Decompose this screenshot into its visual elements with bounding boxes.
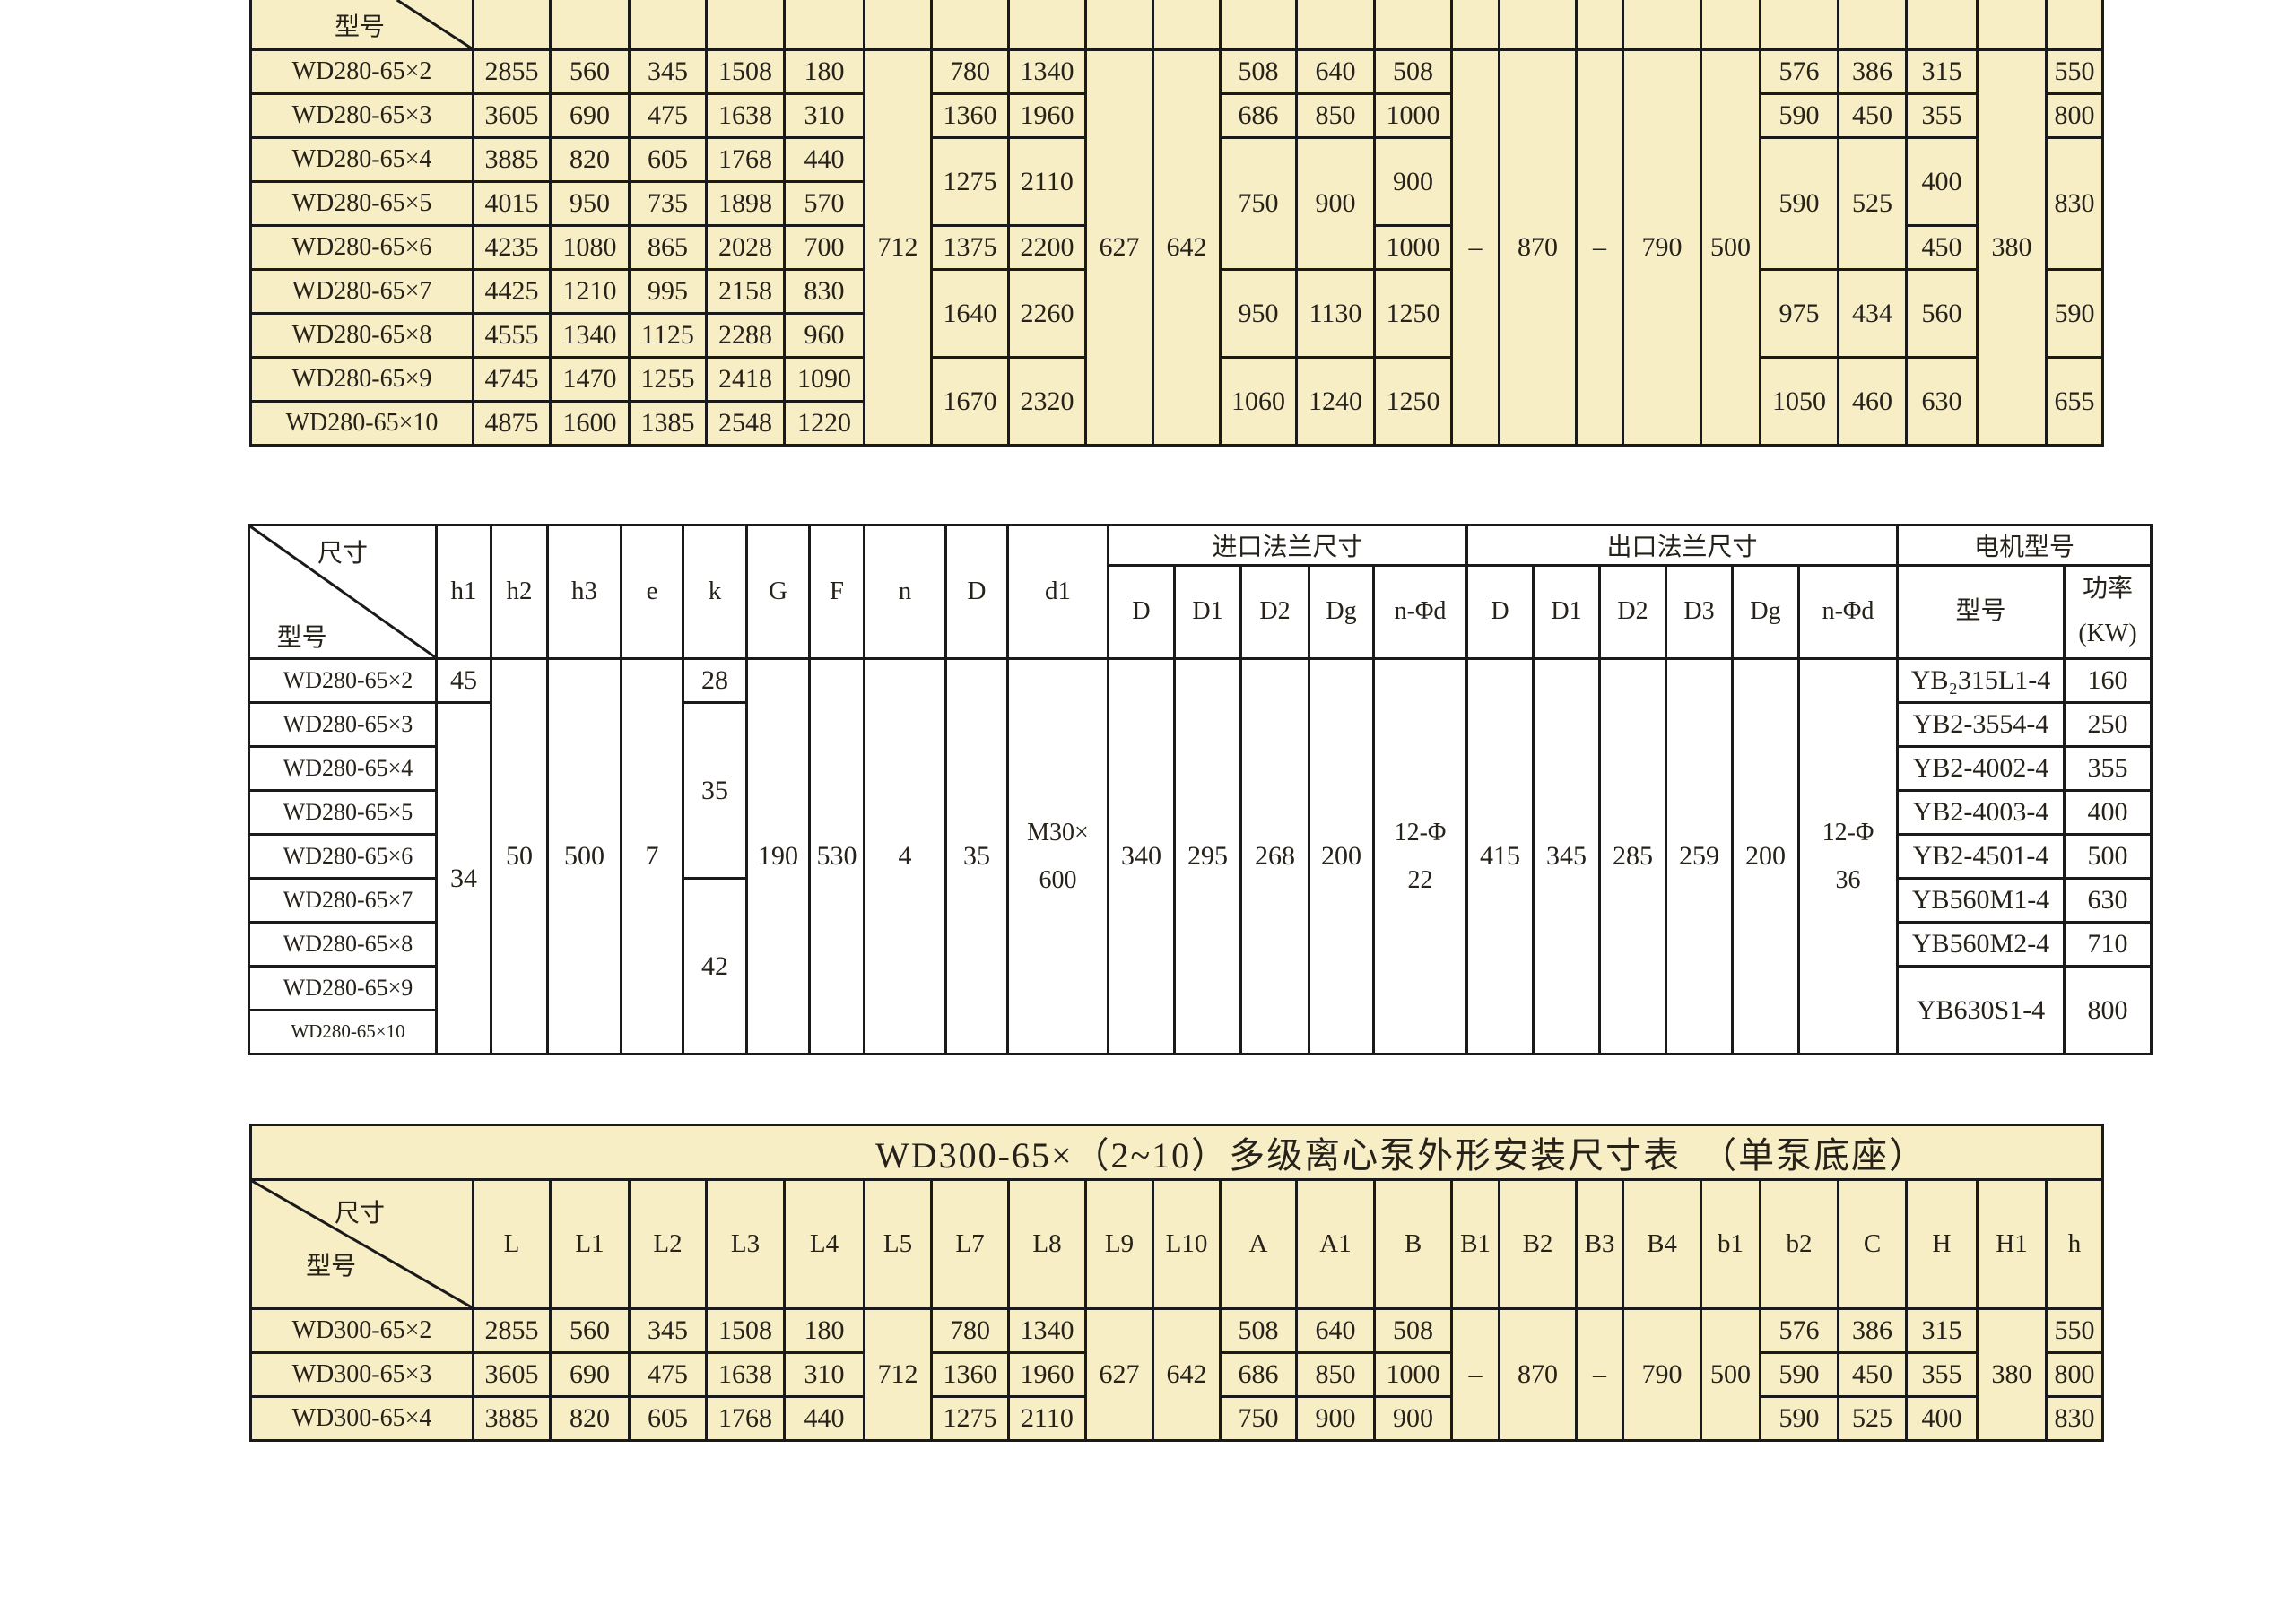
cut-header-cell bbox=[707, 0, 785, 50]
value-cell: 1768 bbox=[707, 138, 785, 182]
value-cell: 1638 bbox=[707, 94, 785, 138]
column-header: D1 bbox=[1175, 566, 1241, 659]
value-cell: – bbox=[1577, 50, 1623, 446]
value-cell: 605 bbox=[630, 1397, 707, 1441]
value-cell: 800 bbox=[2047, 94, 2103, 138]
cut-header-cell bbox=[1086, 0, 1153, 50]
value-cell: 1240 bbox=[1297, 358, 1375, 446]
column-header: L bbox=[474, 1180, 551, 1309]
value-cell: 750 bbox=[1221, 1397, 1297, 1441]
column-header: L3 bbox=[707, 1180, 785, 1309]
cut-header-cell bbox=[1221, 0, 1297, 50]
value-cell: 1508 bbox=[707, 1309, 785, 1353]
value-cell: 975 bbox=[1761, 270, 1839, 358]
value-cell: 1125 bbox=[630, 314, 707, 358]
value-cell: 576 bbox=[1761, 50, 1839, 94]
column-header: n bbox=[865, 525, 946, 659]
value-cell: 950 bbox=[1221, 270, 1297, 358]
value-cell: 1640 bbox=[932, 270, 1009, 358]
value-cell: 355 bbox=[2065, 746, 2152, 790]
column-header: L5 bbox=[865, 1180, 932, 1309]
value-cell: 590 bbox=[1761, 1353, 1839, 1397]
value-cell: 576 bbox=[1761, 1309, 1839, 1353]
value-cell: 508 bbox=[1375, 1309, 1452, 1353]
corner-cell: 尺寸 型号 bbox=[251, 1180, 474, 1309]
table-row: WD280-65×24550500728190530435M30× 600340… bbox=[249, 658, 2152, 702]
column-header: b2 bbox=[1761, 1180, 1839, 1309]
value-cell: 415 bbox=[1467, 658, 1534, 1054]
value-cell: 285 bbox=[1600, 658, 1666, 1054]
value-cell: 525 bbox=[1839, 138, 1907, 270]
value-cell: 12-Φ 22 bbox=[1374, 658, 1467, 1054]
cut-header-cell bbox=[1839, 0, 1907, 50]
value-cell: 800 bbox=[2065, 966, 2152, 1054]
value-cell: 530 bbox=[810, 658, 865, 1054]
value-cell: 712 bbox=[865, 1309, 932, 1441]
value-cell: 4425 bbox=[474, 270, 551, 314]
cut-header-cell bbox=[1297, 0, 1375, 50]
value-cell: 1470 bbox=[551, 358, 630, 402]
model-cell: WD280-65×6 bbox=[251, 226, 474, 270]
value-cell: 1275 bbox=[932, 138, 1009, 226]
column-header: B1 bbox=[1452, 1180, 1500, 1309]
corner-model-label: 型号 bbox=[277, 618, 327, 654]
value-cell: 712 bbox=[865, 50, 932, 446]
value-cell: 550 bbox=[2047, 50, 2103, 94]
value-cell: 780 bbox=[932, 1309, 1009, 1353]
value-cell: 310 bbox=[785, 94, 865, 138]
cut-header-cell bbox=[865, 0, 932, 50]
column-header: L7 bbox=[932, 1180, 1009, 1309]
cut-header-cell bbox=[1701, 0, 1761, 50]
value-cell: 1220 bbox=[785, 402, 865, 446]
cut-header-cell bbox=[630, 0, 707, 50]
value-cell: 1210 bbox=[551, 270, 630, 314]
cut-header-cell bbox=[1452, 0, 1500, 50]
document-page: 型号 WD280-65×2285556034515081807127801340… bbox=[0, 0, 2296, 1623]
value-cell: 870 bbox=[1500, 50, 1577, 446]
value-cell: 642 bbox=[1153, 50, 1221, 446]
value-cell: 450 bbox=[1839, 1353, 1907, 1397]
value-cell: 960 bbox=[785, 314, 865, 358]
column-header: L1 bbox=[551, 1180, 630, 1309]
corner-cell: 型号 bbox=[251, 0, 474, 50]
value-cell: 1255 bbox=[630, 358, 707, 402]
value-cell: 508 bbox=[1375, 50, 1452, 94]
value-cell: 686 bbox=[1221, 94, 1297, 138]
column-header: k bbox=[683, 525, 747, 659]
motor-model-header: 型号 bbox=[1898, 566, 2065, 659]
value-cell: 2320 bbox=[1009, 358, 1086, 446]
model-cell: WD280-65×4 bbox=[249, 746, 437, 790]
column-header: D1 bbox=[1534, 566, 1600, 659]
value-cell: 2158 bbox=[707, 270, 785, 314]
cut-header-cell bbox=[1500, 0, 1577, 50]
value-cell: 508 bbox=[1221, 50, 1297, 94]
value-cell: 900 bbox=[1297, 138, 1375, 270]
inlet-flange-group-header: 进口法兰尺寸 bbox=[1109, 525, 1467, 566]
value-cell: 642 bbox=[1153, 1309, 1221, 1441]
value-cell: 1130 bbox=[1297, 270, 1375, 358]
column-header: L8 bbox=[1009, 1180, 1086, 1309]
value-cell: – bbox=[1452, 1309, 1500, 1441]
model-cell: WD280-65×7 bbox=[251, 270, 474, 314]
model-cell: WD280-65×5 bbox=[249, 790, 437, 834]
value-cell: 2110 bbox=[1009, 138, 1086, 226]
value-cell: 690 bbox=[551, 1353, 630, 1397]
cut-header-cell bbox=[1577, 0, 1623, 50]
value-cell: 1000 bbox=[1375, 94, 1452, 138]
model-cell: WD300-65×2 bbox=[251, 1309, 474, 1353]
value-cell: 525 bbox=[1839, 1397, 1907, 1441]
model-cell: WD300-65×3 bbox=[251, 1353, 474, 1397]
model-cell: WD300-65×4 bbox=[251, 1397, 474, 1441]
value-cell: 950 bbox=[551, 182, 630, 226]
column-header: e bbox=[622, 525, 683, 659]
value-cell: 1080 bbox=[551, 226, 630, 270]
value-cell: 900 bbox=[1375, 138, 1452, 226]
column-header: D bbox=[1467, 566, 1534, 659]
value-cell: 690 bbox=[551, 94, 630, 138]
value-cell: 865 bbox=[630, 226, 707, 270]
value-cell: 1898 bbox=[707, 182, 785, 226]
column-header: B2 bbox=[1500, 1180, 1577, 1309]
corner-model-label: 型号 bbox=[306, 1246, 356, 1282]
value-cell: 190 bbox=[747, 658, 810, 1054]
value-cell: 4015 bbox=[474, 182, 551, 226]
value-cell: 560 bbox=[551, 1309, 630, 1353]
value-cell: 655 bbox=[2047, 358, 2103, 446]
value-cell: 268 bbox=[1241, 658, 1309, 1054]
value-cell: 34 bbox=[437, 702, 491, 1054]
table-row: WD280-65×2285556034515081807127801340627… bbox=[251, 50, 2103, 94]
value-cell: 1000 bbox=[1375, 226, 1452, 270]
value-cell: 800 bbox=[2047, 1353, 2103, 1397]
value-cell: 475 bbox=[630, 94, 707, 138]
value-cell: YB630S1-4 bbox=[1898, 966, 2065, 1054]
value-cell: 400 bbox=[2065, 790, 2152, 834]
table-row: WD300-65×2285556034515081807127801340627… bbox=[251, 1309, 2103, 1353]
wd300-outline-table: WD300-65×（2~10）多级离心泵外形安装尺寸表 （单泵底座） 尺寸 型号… bbox=[249, 1124, 2104, 1442]
cut-header-cell bbox=[474, 0, 551, 50]
value-cell: 570 bbox=[785, 182, 865, 226]
cut-header-cell bbox=[1623, 0, 1701, 50]
model-cell: WD280-65×9 bbox=[251, 358, 474, 402]
value-cell: 386 bbox=[1839, 50, 1907, 94]
column-header: h2 bbox=[491, 525, 548, 659]
header-row: 尺寸 型号 L L1 L2 L3 L4 L5 L7 L8 L9 L10 A A1… bbox=[251, 1180, 2103, 1309]
column-header: n-Φd bbox=[1374, 566, 1467, 659]
value-cell: 508 bbox=[1221, 1309, 1297, 1353]
value-cell: 3605 bbox=[474, 94, 551, 138]
value-cell: 200 bbox=[1733, 658, 1799, 1054]
column-header: A1 bbox=[1297, 1180, 1375, 1309]
cut-header-cell bbox=[932, 0, 1009, 50]
value-cell: 250 bbox=[2065, 702, 2152, 746]
corner-model-label: 型号 bbox=[335, 7, 385, 43]
cut-header-cell bbox=[1375, 0, 1452, 50]
value-cell: 627 bbox=[1086, 50, 1153, 446]
cut-header-cell bbox=[2047, 0, 2103, 50]
value-cell: 640 bbox=[1297, 1309, 1375, 1353]
value-cell: 28 bbox=[683, 658, 747, 702]
value-cell: 605 bbox=[630, 138, 707, 182]
value-cell: 830 bbox=[2047, 138, 2103, 270]
motor-group-header: 电机型号 bbox=[1898, 525, 2152, 566]
table-title: WD300-65×（2~10）多级离心泵外形安装尺寸表 （单泵底座） bbox=[251, 1125, 2103, 1180]
column-header: H bbox=[1907, 1180, 1978, 1309]
value-cell: 2200 bbox=[1009, 226, 1086, 270]
value-cell: 820 bbox=[551, 138, 630, 182]
value-cell: 1670 bbox=[932, 358, 1009, 446]
group-header-row: 尺寸 型号 h1 h2 h3 e k G F n D d1 进口法兰尺寸 出口法… bbox=[249, 525, 2152, 566]
value-cell: 1960 bbox=[1009, 1353, 1086, 1397]
model-cell: WD280-65×8 bbox=[251, 314, 474, 358]
value-cell: 560 bbox=[551, 50, 630, 94]
value-cell: 1385 bbox=[630, 402, 707, 446]
value-cell: 450 bbox=[1907, 226, 1978, 270]
model-cell: WD280-65×6 bbox=[249, 834, 437, 878]
value-cell: 1090 bbox=[785, 358, 865, 402]
value-cell: 1250 bbox=[1375, 358, 1452, 446]
value-cell: 2855 bbox=[474, 1309, 551, 1353]
value-cell: 627 bbox=[1086, 1309, 1153, 1441]
value-cell: 3885 bbox=[474, 138, 551, 182]
cut-header-cell bbox=[1761, 0, 1839, 50]
value-cell: 1375 bbox=[932, 226, 1009, 270]
value-cell: 400 bbox=[1907, 1397, 1978, 1441]
value-cell: 45 bbox=[437, 658, 491, 702]
value-cell: 259 bbox=[1666, 658, 1733, 1054]
value-cell: 400 bbox=[1907, 138, 1978, 226]
value-cell: 780 bbox=[932, 50, 1009, 94]
value-cell: 1960 bbox=[1009, 94, 1086, 138]
value-cell: 590 bbox=[1761, 94, 1839, 138]
value-cell: 35 bbox=[683, 702, 747, 878]
value-cell: 1340 bbox=[1009, 50, 1086, 94]
model-cell: WD280-65×3 bbox=[249, 702, 437, 746]
value-cell: 180 bbox=[785, 50, 865, 94]
value-cell: 3605 bbox=[474, 1353, 551, 1397]
value-cell: 1275 bbox=[932, 1397, 1009, 1441]
value-cell: 450 bbox=[1839, 94, 1907, 138]
value-cell: 180 bbox=[785, 1309, 865, 1353]
value-cell: 900 bbox=[1297, 1397, 1375, 1441]
value-cell: 550 bbox=[2047, 1309, 2103, 1353]
column-header: h1 bbox=[437, 525, 491, 659]
value-cell: 4875 bbox=[474, 402, 551, 446]
value-cell: 440 bbox=[785, 138, 865, 182]
column-header: b1 bbox=[1701, 1180, 1761, 1309]
value-cell: 995 bbox=[630, 270, 707, 314]
column-header: D2 bbox=[1600, 566, 1666, 659]
cut-header-cell bbox=[1978, 0, 2047, 50]
cut-header-cell bbox=[785, 0, 865, 50]
value-cell: 295 bbox=[1175, 658, 1241, 1054]
value-cell: 35 bbox=[946, 658, 1008, 1054]
value-cell: 345 bbox=[630, 50, 707, 94]
value-cell: 1638 bbox=[707, 1353, 785, 1397]
value-cell: 2028 bbox=[707, 226, 785, 270]
value-cell: 460 bbox=[1839, 358, 1907, 446]
corner-size-label: 尺寸 bbox=[317, 534, 368, 569]
value-cell: YB560M2-4 bbox=[1898, 922, 2065, 966]
column-header: L2 bbox=[630, 1180, 707, 1309]
value-cell: 790 bbox=[1623, 50, 1701, 446]
value-cell: 345 bbox=[1534, 658, 1600, 1054]
value-cell: 310 bbox=[785, 1353, 865, 1397]
value-cell: 1360 bbox=[932, 94, 1009, 138]
value-cell: 1360 bbox=[932, 1353, 1009, 1397]
value-cell: 4235 bbox=[474, 226, 551, 270]
column-header: B bbox=[1375, 1180, 1452, 1309]
value-cell: 1768 bbox=[707, 1397, 785, 1441]
value-cell: 590 bbox=[2047, 270, 2103, 358]
column-header: L4 bbox=[785, 1180, 865, 1309]
value-cell: 380 bbox=[1978, 50, 2047, 446]
value-cell: 440 bbox=[785, 1397, 865, 1441]
wd280-outline-table: 型号 WD280-65×2285556034515081807127801340… bbox=[249, 0, 2104, 447]
value-cell: 830 bbox=[2047, 1397, 2103, 1441]
column-header: n-Φd bbox=[1799, 566, 1898, 659]
value-cell: 355 bbox=[1907, 94, 1978, 138]
model-cell: WD280-65×2 bbox=[251, 50, 474, 94]
value-cell: 2110 bbox=[1009, 1397, 1086, 1441]
value-cell: 850 bbox=[1297, 94, 1375, 138]
cut-header-cell bbox=[1009, 0, 1086, 50]
value-cell: 1060 bbox=[1221, 358, 1297, 446]
value-cell: 200 bbox=[1309, 658, 1374, 1054]
value-cell: 340 bbox=[1109, 658, 1175, 1054]
value-cell: 4745 bbox=[474, 358, 551, 402]
value-cell: 2288 bbox=[707, 314, 785, 358]
value-cell: 475 bbox=[630, 1353, 707, 1397]
model-cell: WD280-65×5 bbox=[251, 182, 474, 226]
value-cell: 434 bbox=[1839, 270, 1907, 358]
corner-size-label: 尺寸 bbox=[335, 1193, 385, 1229]
value-cell: 345 bbox=[630, 1309, 707, 1353]
value-cell: M30× 600 bbox=[1008, 658, 1109, 1054]
model-cell: WD280-65×10 bbox=[249, 1010, 437, 1054]
column-header: L9 bbox=[1086, 1180, 1153, 1309]
value-cell: 640 bbox=[1297, 50, 1375, 94]
value-cell: YB560M1-4 bbox=[1898, 878, 2065, 922]
value-cell: 1000 bbox=[1375, 1353, 1452, 1397]
column-header: Dg bbox=[1733, 566, 1799, 659]
value-cell: 630 bbox=[2065, 878, 2152, 922]
value-cell: 12-Φ 36 bbox=[1799, 658, 1898, 1054]
column-header: D3 bbox=[1666, 566, 1733, 659]
value-cell: 850 bbox=[1297, 1353, 1375, 1397]
value-cell: 315 bbox=[1907, 50, 1978, 94]
value-cell: 42 bbox=[683, 878, 747, 1054]
value-cell: 830 bbox=[785, 270, 865, 314]
column-header: A bbox=[1221, 1180, 1297, 1309]
value-cell: 1250 bbox=[1375, 270, 1452, 358]
model-cell: WD280-65×2 bbox=[249, 658, 437, 702]
value-cell: 686 bbox=[1221, 1353, 1297, 1397]
value-cell: 735 bbox=[630, 182, 707, 226]
value-cell: YB₂315L1-4 bbox=[1898, 658, 2065, 702]
value-cell: 160 bbox=[2065, 658, 2152, 702]
column-header: D bbox=[946, 525, 1008, 659]
value-cell: 590 bbox=[1761, 1397, 1839, 1441]
column-header: B3 bbox=[1577, 1180, 1623, 1309]
value-cell: 2855 bbox=[474, 50, 551, 94]
value-cell: YB2-4003-4 bbox=[1898, 790, 2065, 834]
value-cell: 4555 bbox=[474, 314, 551, 358]
wd280-dimension-flange-motor-table: 尺寸 型号 h1 h2 h3 e k G F n D d1 进口法兰尺寸 出口法… bbox=[248, 524, 2152, 1055]
column-header: d1 bbox=[1008, 525, 1109, 659]
column-header: C bbox=[1839, 1180, 1907, 1309]
model-cell: WD280-65×4 bbox=[251, 138, 474, 182]
value-cell: 500 bbox=[2065, 834, 2152, 878]
value-cell: 560 bbox=[1907, 270, 1978, 358]
column-header: Dg bbox=[1309, 566, 1374, 659]
value-cell: 3885 bbox=[474, 1397, 551, 1441]
value-cell: 386 bbox=[1839, 1309, 1907, 1353]
outlet-flange-group-header: 出口法兰尺寸 bbox=[1467, 525, 1898, 566]
value-cell: 820 bbox=[551, 1397, 630, 1441]
cut-header-cell bbox=[1907, 0, 1978, 50]
value-cell: 2418 bbox=[707, 358, 785, 402]
column-header: h3 bbox=[548, 525, 622, 659]
value-cell: YB2-3554-4 bbox=[1898, 702, 2065, 746]
motor-power-header: 功率 (KW) bbox=[2065, 566, 2152, 659]
column-header: F bbox=[810, 525, 865, 659]
column-header: B4 bbox=[1623, 1180, 1701, 1309]
value-cell: 500 bbox=[1701, 50, 1761, 446]
cut-header-cell bbox=[551, 0, 630, 50]
cut-header-cell bbox=[1153, 0, 1221, 50]
column-header: L10 bbox=[1153, 1180, 1221, 1309]
value-cell: 1340 bbox=[1009, 1309, 1086, 1353]
value-cell: – bbox=[1577, 1309, 1623, 1441]
value-cell: 1508 bbox=[707, 50, 785, 94]
corner-cell: 尺寸 型号 bbox=[249, 525, 437, 659]
value-cell: 500 bbox=[548, 658, 622, 1054]
model-cell: WD280-65×7 bbox=[249, 878, 437, 922]
column-header: h bbox=[2047, 1180, 2103, 1309]
value-cell: 355 bbox=[1907, 1353, 1978, 1397]
value-cell: 630 bbox=[1907, 358, 1978, 446]
value-cell: 590 bbox=[1761, 138, 1839, 270]
value-cell: 380 bbox=[1978, 1309, 2047, 1441]
column-header: H1 bbox=[1978, 1180, 2047, 1309]
value-cell: – bbox=[1452, 50, 1500, 446]
value-cell: 790 bbox=[1623, 1309, 1701, 1441]
title-row: WD300-65×（2~10）多级离心泵外形安装尺寸表 （单泵底座） bbox=[251, 1125, 2103, 1180]
value-cell: 710 bbox=[2065, 922, 2152, 966]
column-header: G bbox=[747, 525, 810, 659]
cut-header-row: 型号 bbox=[251, 0, 2103, 50]
value-cell: YB2-4501-4 bbox=[1898, 834, 2065, 878]
value-cell: 1340 bbox=[551, 314, 630, 358]
value-cell: 1050 bbox=[1761, 358, 1839, 446]
value-cell: 870 bbox=[1500, 1309, 1577, 1441]
value-cell: 7 bbox=[622, 658, 683, 1054]
column-header: D bbox=[1109, 566, 1175, 659]
value-cell: 50 bbox=[491, 658, 548, 1054]
value-cell: 900 bbox=[1375, 1397, 1452, 1441]
value-cell: 315 bbox=[1907, 1309, 1978, 1353]
value-cell: 500 bbox=[1701, 1309, 1761, 1441]
value-cell: 700 bbox=[785, 226, 865, 270]
value-cell: 750 bbox=[1221, 138, 1297, 270]
column-header: D2 bbox=[1241, 566, 1309, 659]
model-cell: WD280-65×9 bbox=[249, 966, 437, 1010]
value-cell: 2260 bbox=[1009, 270, 1086, 358]
